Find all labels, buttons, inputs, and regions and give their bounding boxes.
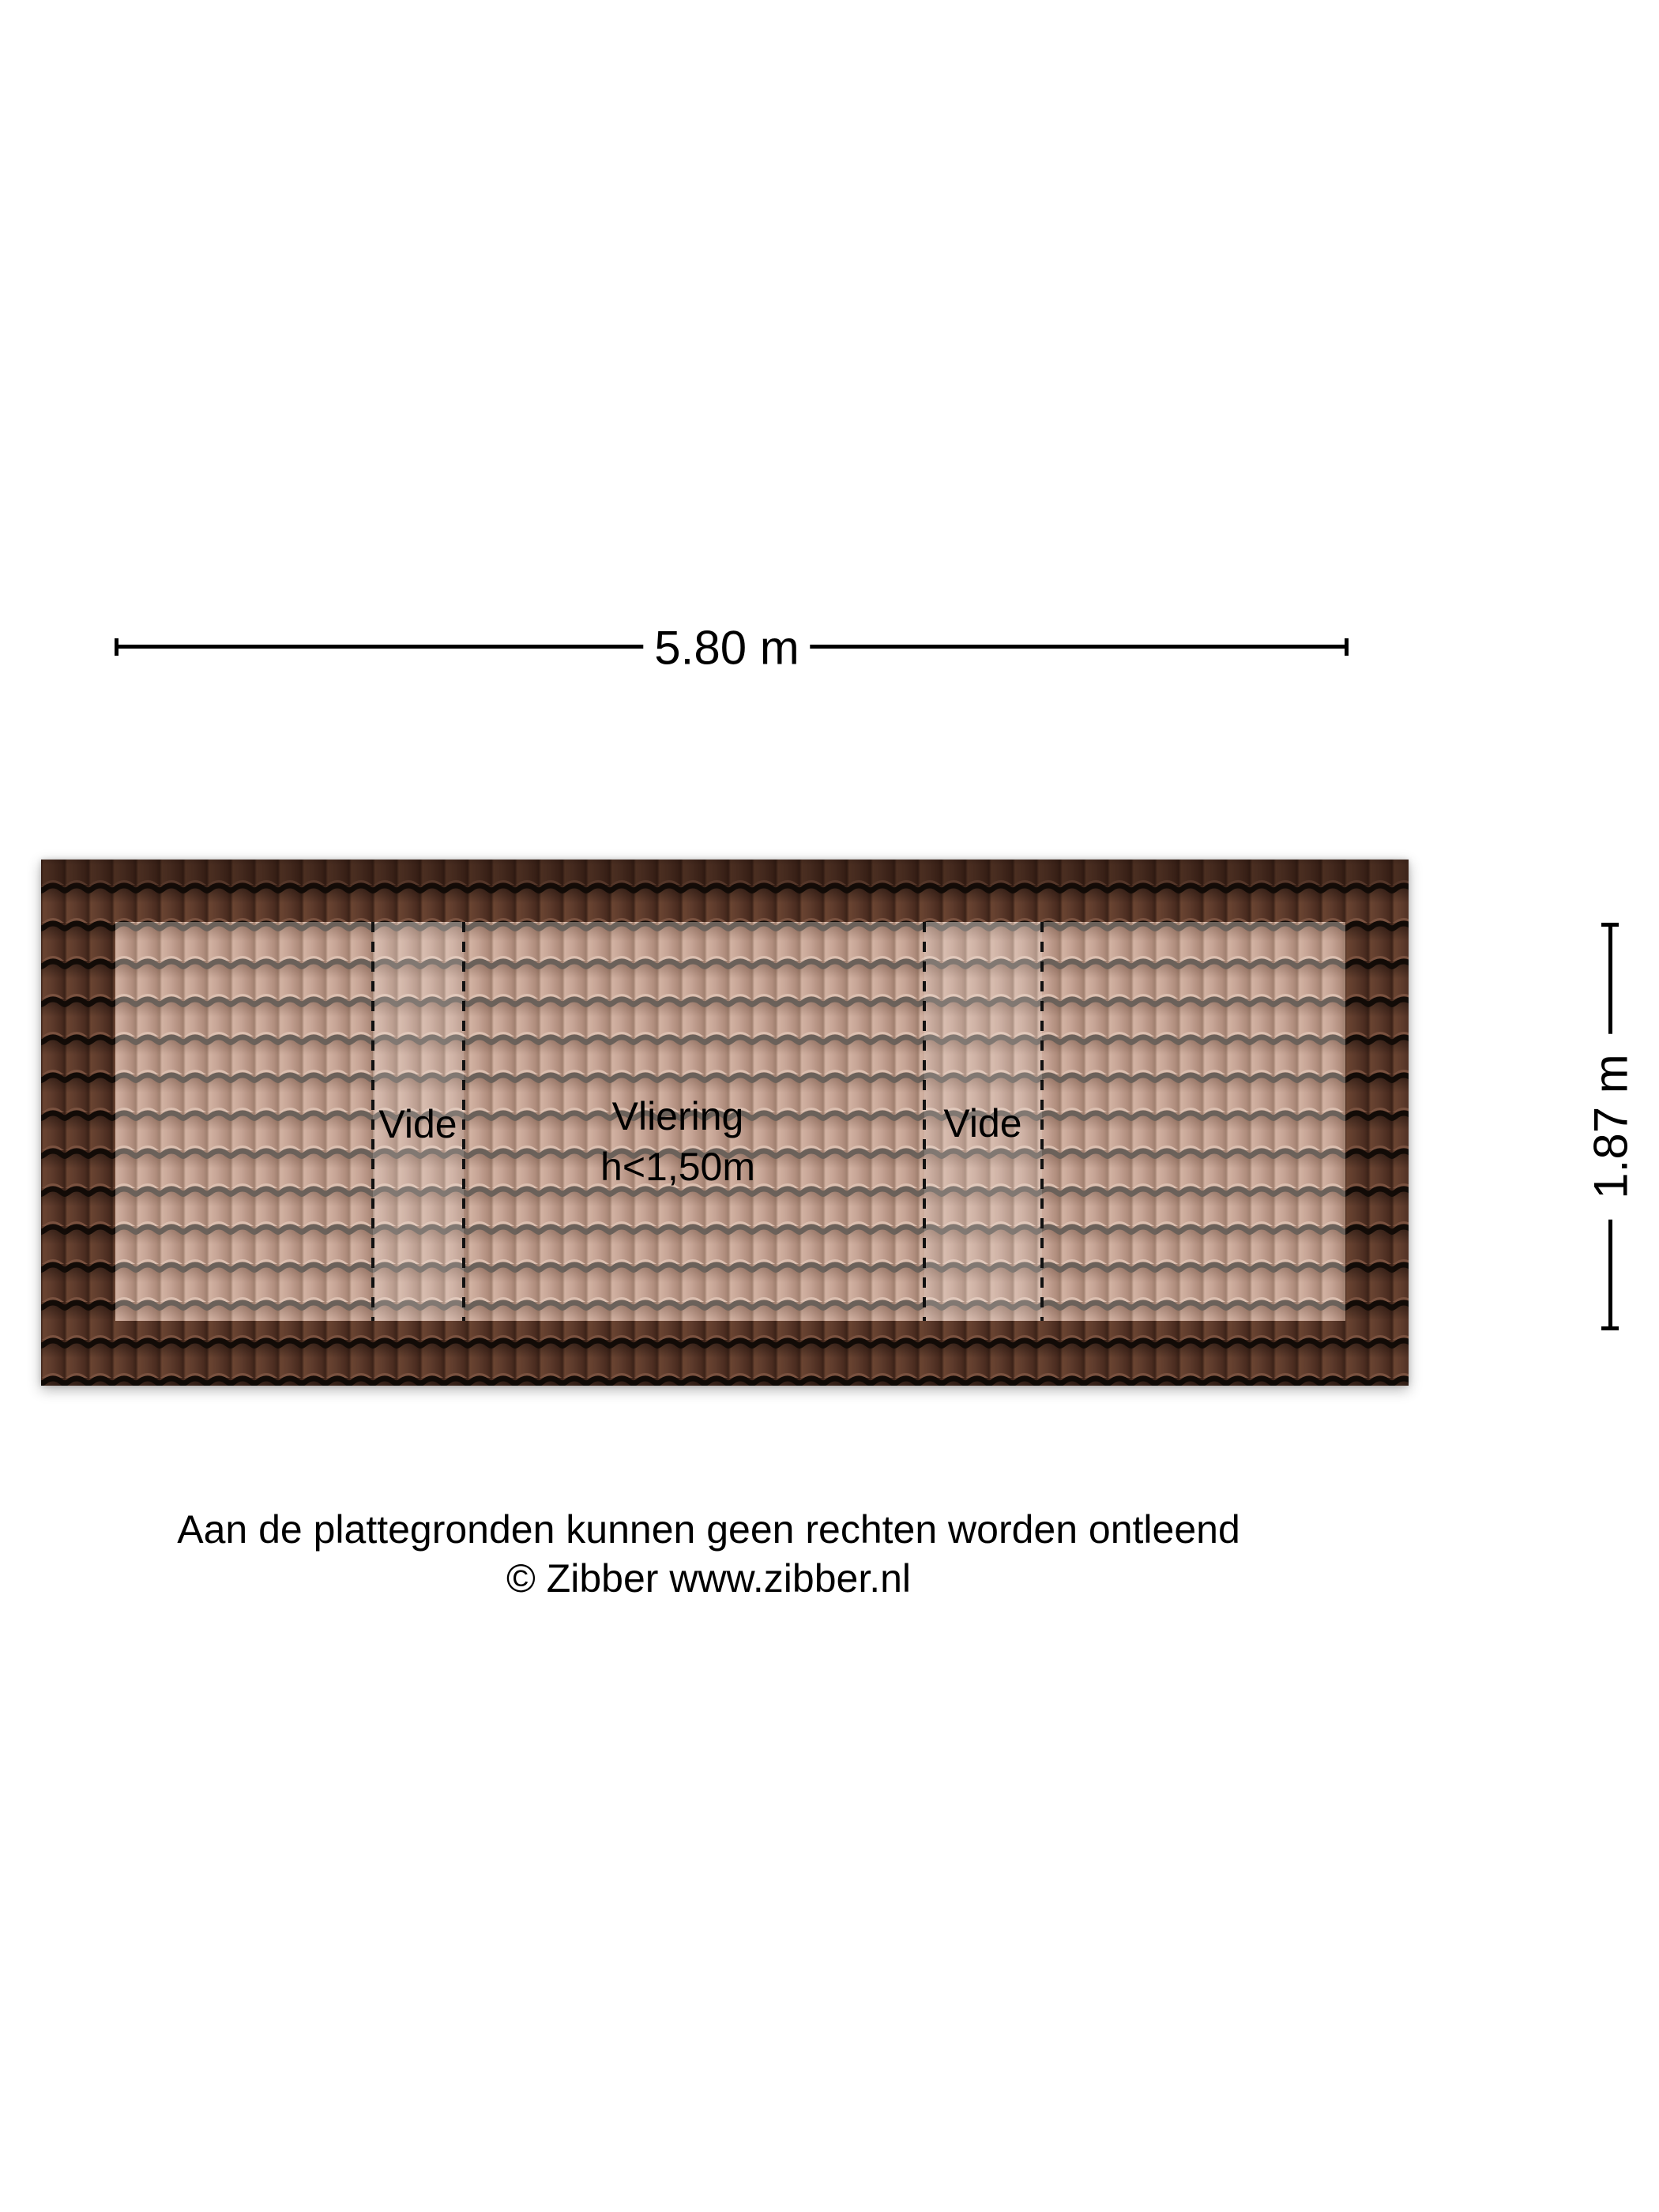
depth-dimension-label: 1.87 m xyxy=(1584,1033,1638,1219)
width-dimension-left-tick xyxy=(115,638,118,656)
depth-dimension: 1.87 m xyxy=(1608,923,1612,1330)
width-dimension: 5.80 m xyxy=(115,638,1349,657)
depth-dimension-bottom-tick xyxy=(1601,1326,1619,1330)
disclaimer-line2: © Zibber www.zibber.nl xyxy=(177,1554,1240,1603)
disclaimer-line1: Aan de plattegronden kunnen geen rechten… xyxy=(177,1505,1240,1554)
vliering-height-note: h<1,50m xyxy=(600,1142,755,1192)
room-label-vliering: Vliering h<1,50m xyxy=(600,1091,755,1192)
disclaimer: Aan de plattegronden kunnen geen rechten… xyxy=(177,1505,1240,1603)
roof-eave-shadow xyxy=(41,1380,1409,1386)
floorplan-page: 5.80 m 1.87 m xyxy=(0,0,1659,2212)
room-label-vide-right: Vide xyxy=(943,1100,1021,1146)
roof-ridge-shadow xyxy=(41,860,1409,886)
width-dimension-label: 5.80 m xyxy=(643,621,810,675)
width-dimension-right-tick xyxy=(1345,638,1349,656)
depth-dimension-top-tick xyxy=(1601,923,1619,927)
vliering-name: Vliering xyxy=(600,1091,755,1142)
room-label-vide-left: Vide xyxy=(378,1101,457,1147)
